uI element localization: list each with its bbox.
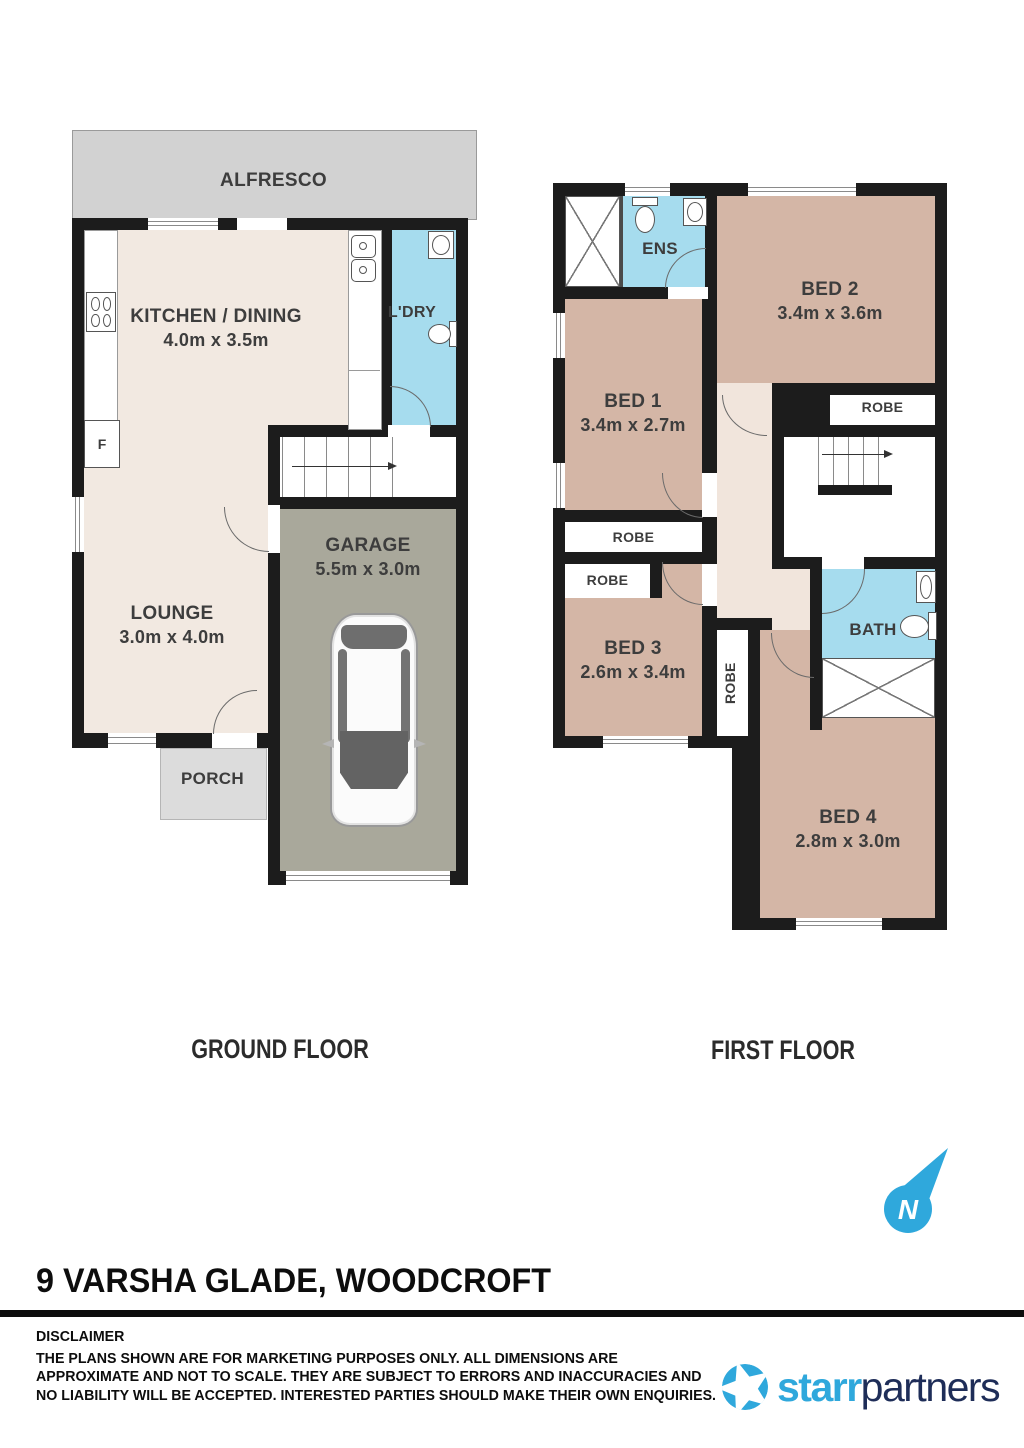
alfresco-label: ALFRESCO [72, 169, 475, 193]
disclaimer-heading: DISCLAIMER [36, 1328, 722, 1347]
bed2-label: BED 2 3.4m x 3.6m [725, 278, 935, 324]
bed1-robe-label: ROBE [565, 529, 702, 547]
first-stair-direction-arrow [822, 454, 884, 455]
floorplan-page: ALFRESCO F [0, 0, 1024, 1448]
garage-label: GARAGE 5.5m x 3.0m [288, 534, 448, 580]
ensuite-window [625, 183, 670, 196]
laundry-toilet-icon [428, 324, 451, 344]
brand-partners: partners [861, 1364, 999, 1410]
bed1-label: BED 1 3.4m x 2.7m [563, 390, 703, 436]
stair-void-wall [818, 485, 892, 495]
bed3-door-opening [702, 564, 717, 606]
bed4-window [796, 918, 882, 930]
porch-label: PORCH [160, 768, 265, 789]
ensuite-shower-icon [565, 196, 620, 287]
first-floor-title: FIRST FLOOR [663, 1035, 903, 1066]
garage-door-opening [268, 505, 280, 553]
starr-partners-wordmark: starrpartners [777, 1364, 999, 1411]
bed4-label: BED 4 2.8m x 3.0m [758, 806, 938, 852]
lounge-window-bottom [108, 733, 156, 748]
bathroom-shower-icon [822, 658, 935, 718]
car-rear-window [341, 625, 407, 649]
bathroom-door-opening [822, 557, 864, 569]
car-top-view [330, 613, 418, 827]
fridge-icon: F [84, 420, 120, 468]
disclaimer-line: APPROXIMATE AND NOT TO SCALE. THEY ARE S… [36, 1368, 722, 1387]
lounge-label: LOUNGE 3.0m x 4.0m [92, 602, 252, 648]
bed3-label: BED 3 2.6m x 3.4m [563, 637, 703, 683]
bathroom-toilet-icon [928, 612, 937, 640]
bathroom-toilet-icon [900, 615, 929, 638]
bed1-window-lower [553, 463, 565, 508]
laundry-label: L'DRY [384, 303, 440, 323]
garage-roller-door [286, 871, 450, 885]
ensuite-label: ENS [635, 238, 685, 259]
kitchen-sink-icon [351, 259, 376, 282]
ensuite-basin-icon [683, 198, 707, 226]
front-door-opening [212, 733, 257, 748]
bathroom-basin-icon [916, 571, 936, 603]
footer-divider [0, 1310, 1024, 1317]
kitchen-sink-icon [351, 235, 376, 258]
hallway-lower [772, 569, 810, 630]
ensuite-door-opening [668, 287, 708, 299]
north-compass-icon: N [876, 1146, 952, 1238]
bed3-window [603, 736, 688, 748]
property-address: 9 VARSHA GLADE, WOODCROFT [36, 1262, 551, 1301]
bed3-robe-label: ROBE [565, 572, 650, 590]
kitchen-window [148, 218, 218, 230]
bed1-door-opening [702, 473, 717, 517]
disclaimer-line: NO LIABILITY WILL BE ACCEPTED. INTERESTE… [36, 1387, 722, 1406]
car-windshield [340, 731, 408, 789]
car-side-window [338, 649, 347, 743]
lounge-window-left [72, 497, 84, 552]
laundry-basin-icon [428, 231, 454, 259]
counter-shelf-line [348, 370, 380, 371]
alfresco-door-opening [237, 218, 287, 230]
ground-stair-treads [282, 437, 394, 497]
ensuite-shower-screen [620, 196, 623, 287]
disclaimer-line: THE PLANS SHOWN ARE FOR MARKETING PURPOS… [36, 1350, 722, 1369]
disclaimer-block: DISCLAIMER THE PLANS SHOWN ARE FOR MARKE… [36, 1328, 722, 1405]
car-side-window [401, 649, 410, 743]
bed3-robe-wall [650, 564, 662, 598]
kitchen-label: KITCHEN / DINING 4.0m x 3.5m [88, 305, 344, 351]
starr-partners-logo: starrpartners [720, 1362, 999, 1412]
bathroom-label: BATH [843, 619, 903, 640]
ensuite-toilet-icon [635, 206, 655, 233]
ground-stair-direction-arrow [292, 466, 388, 467]
first-stair-treads [818, 437, 892, 485]
bed2-robe-label: ROBE [830, 399, 935, 417]
bed4-robe-label: ROBE [722, 652, 740, 714]
compass-letter: N [898, 1194, 919, 1225]
bed1-window-upper [553, 313, 565, 358]
ground-floor-title: GROUND FLOOR [160, 1034, 400, 1065]
starr-partners-star-icon [720, 1362, 770, 1412]
ensuite-toilet-icon [632, 197, 658, 206]
bed2-window [748, 183, 856, 196]
brand-starr: starr [777, 1364, 861, 1410]
